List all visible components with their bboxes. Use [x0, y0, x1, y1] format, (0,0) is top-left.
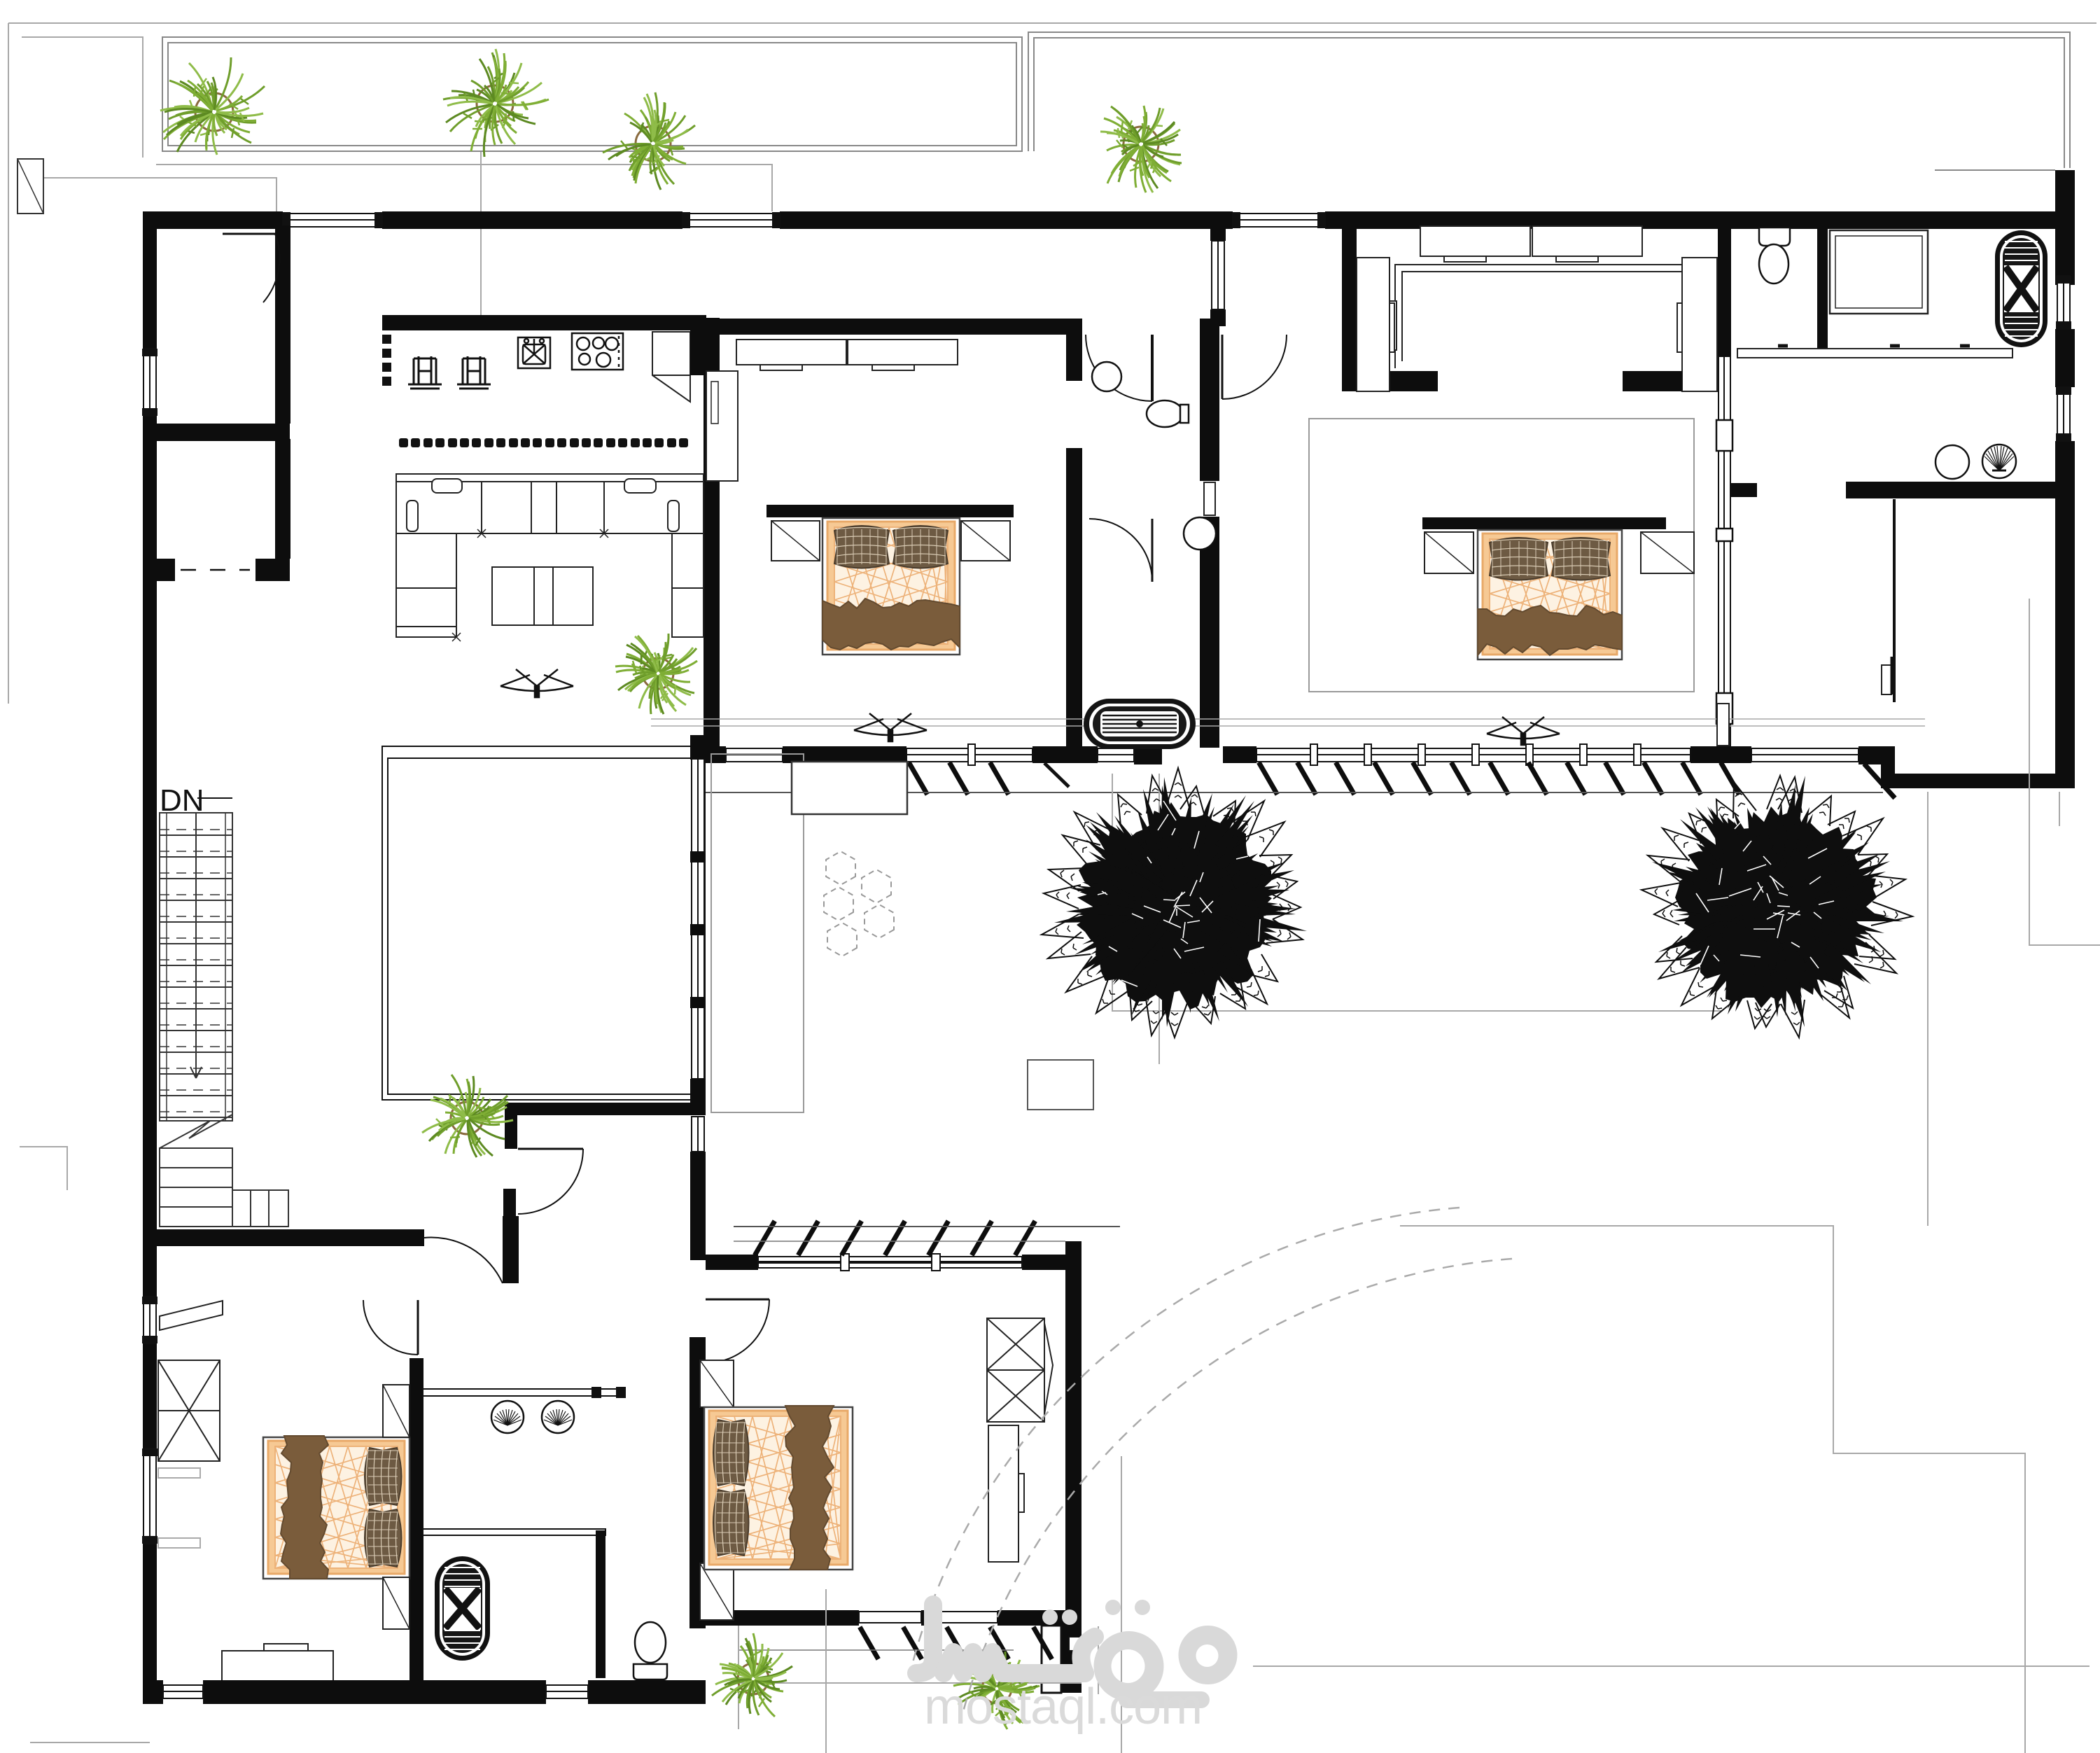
svg-text:mostaql.com: mostaql.com — [924, 1679, 1202, 1735]
